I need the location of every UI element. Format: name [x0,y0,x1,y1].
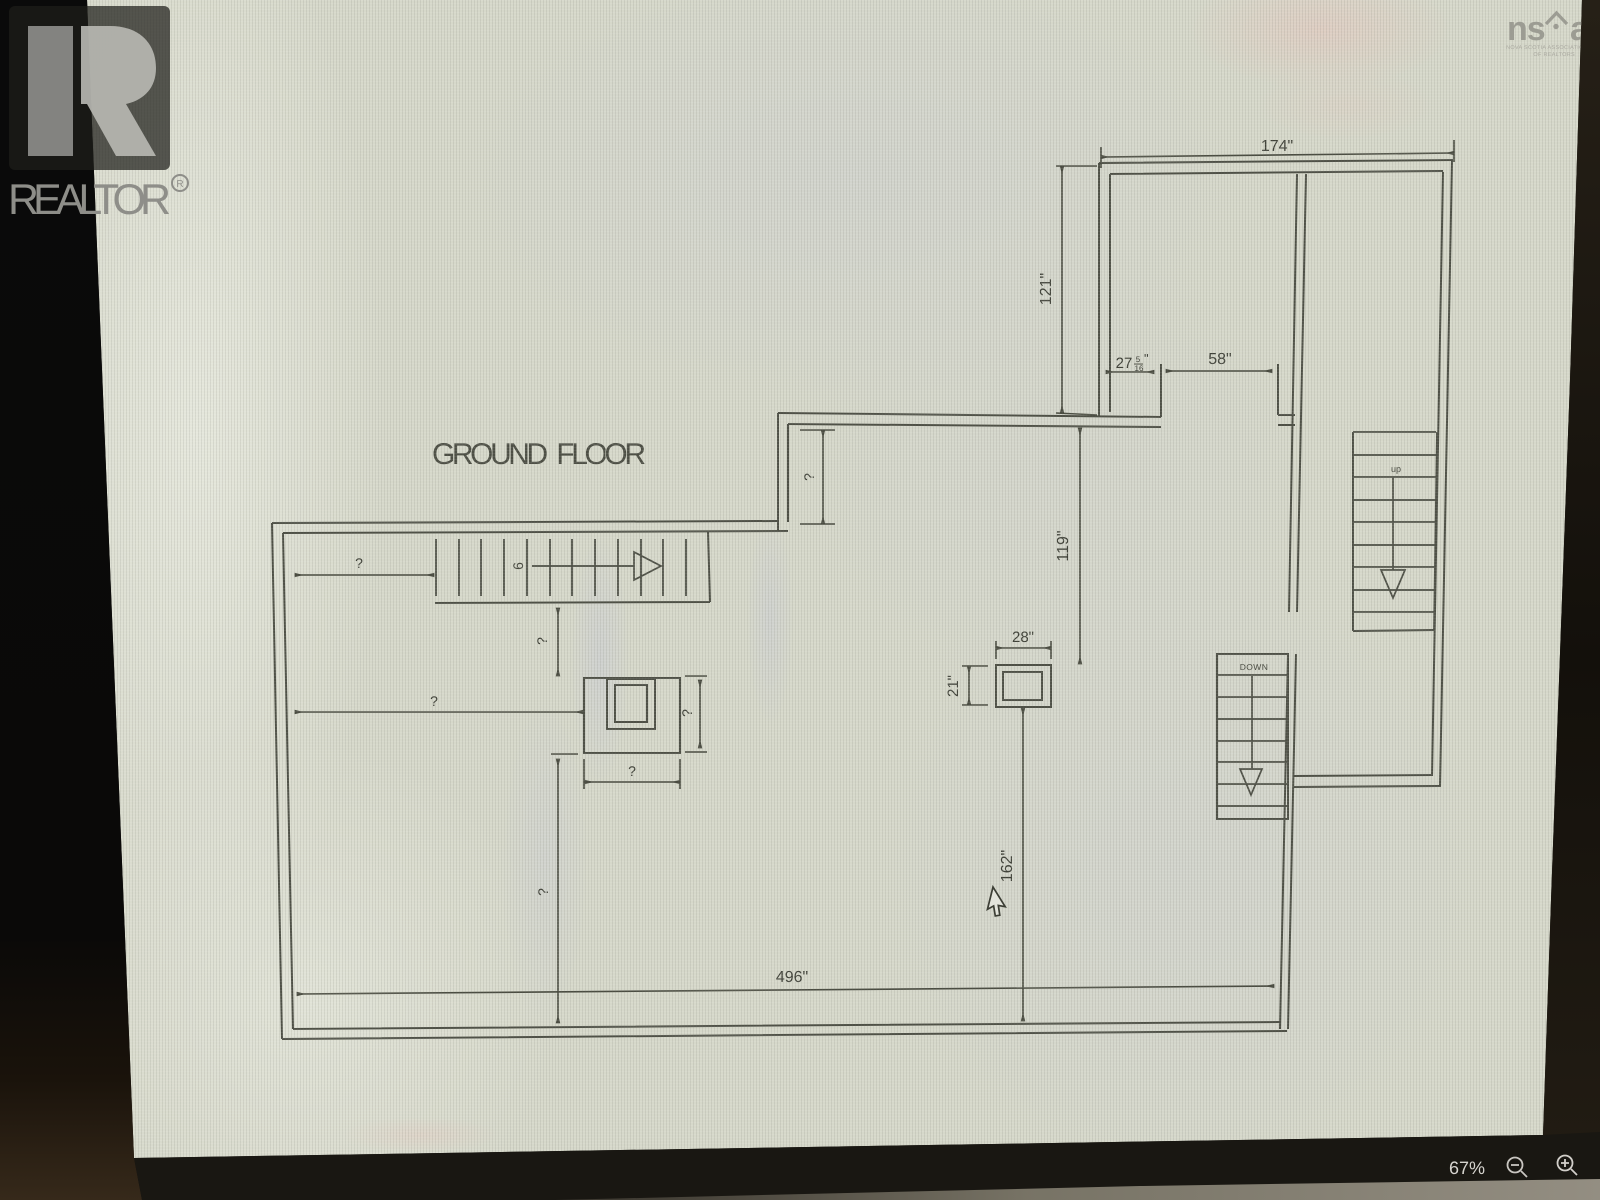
svg-text:OF REALTORS: OF REALTORS [1533,52,1575,58]
svg-text:67%: 67% [1449,1158,1485,1178]
svg-text:R: R [176,179,183,190]
svg-text:REALTOR: REALTOR [8,176,171,224]
svg-text:ns: ns [1507,10,1545,48]
svg-text:NOVA SCOTIA ASSOCIATION: NOVA SCOTIA ASSOCIATION [1506,45,1588,51]
